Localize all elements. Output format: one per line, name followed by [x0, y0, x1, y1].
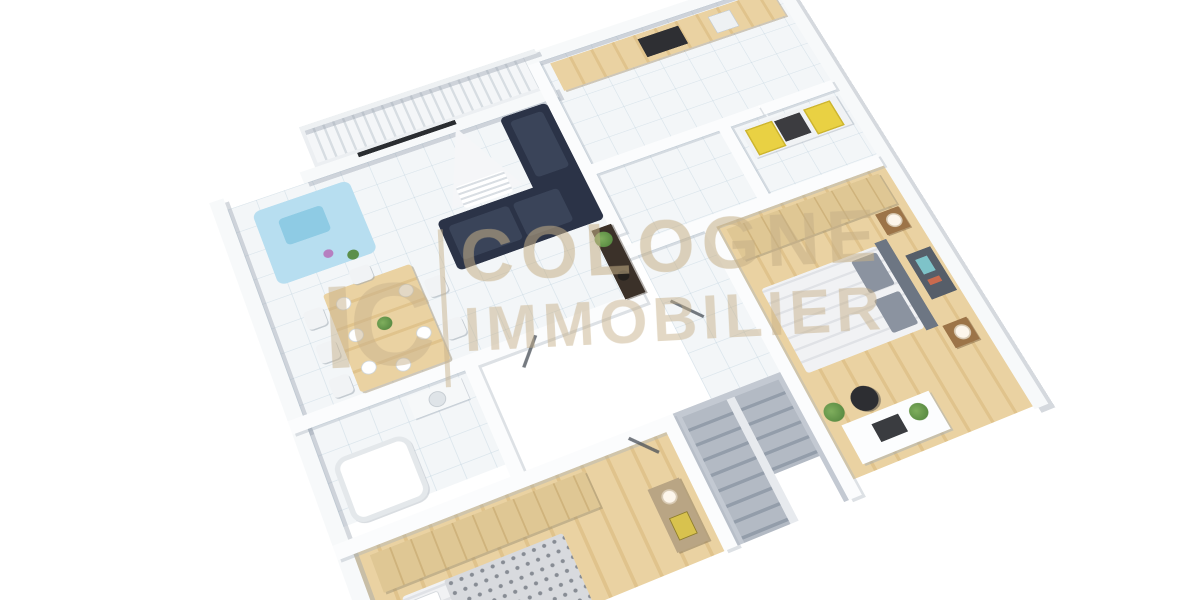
- tv-screen: [915, 256, 936, 275]
- floorplan-render: IC COLOGNE IMMOBILIER: [0, 0, 1200, 600]
- console-decor: [669, 511, 698, 541]
- console-lamp: [659, 487, 681, 507]
- tv-shelf-decor: [927, 275, 942, 285]
- apartment-3d-plan: [184, 0, 1056, 600]
